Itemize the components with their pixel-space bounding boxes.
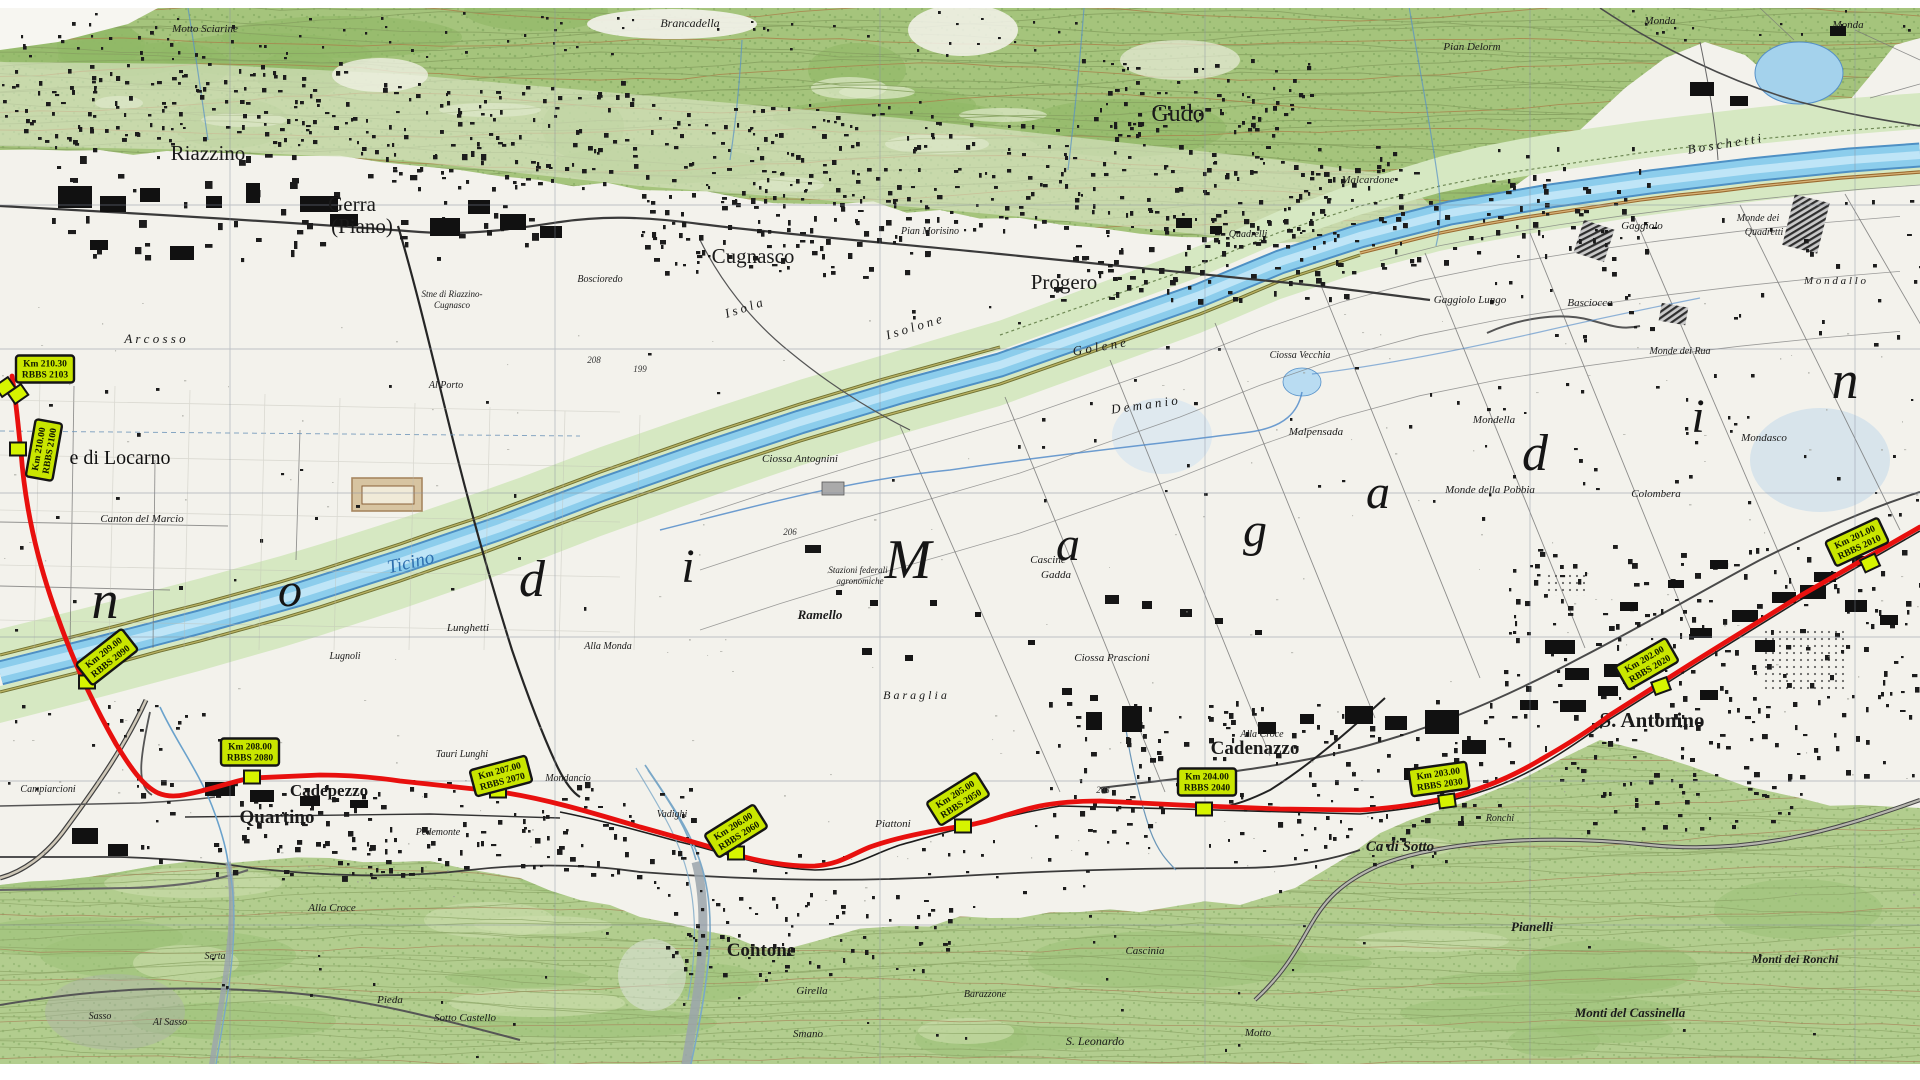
svg-text:Stne di Riazzino-: Stne di Riazzino- (422, 289, 483, 299)
svg-text:Boscioredo: Boscioredo (577, 274, 622, 285)
svg-text:Lunghetti: Lunghetti (446, 622, 489, 634)
svg-text:203: 203 (1096, 785, 1110, 795)
svg-text:o: o (278, 564, 302, 617)
svg-text:Monde dei Rua: Monde dei Rua (1648, 346, 1710, 357)
svg-text:Alla Croce: Alla Croce (1239, 729, 1284, 740)
svg-text:Vadighi: Vadighi (657, 809, 688, 820)
svg-text:Monti del Cassinella: Monti del Cassinella (1574, 1005, 1686, 1020)
svg-text:Ciossa Antognini: Ciossa Antognini (762, 453, 838, 465)
svg-text:Barazzone: Barazzone (964, 989, 1007, 1000)
svg-text:Gerra: Gerra (328, 192, 376, 216)
svg-text:Ramello: Ramello (797, 607, 843, 622)
svg-text:Progero: Progero (1031, 270, 1098, 294)
svg-text:Mondella: Mondella (1472, 414, 1516, 426)
svg-text:Campiarcioni: Campiarcioni (20, 784, 75, 795)
svg-text:Quadretti: Quadretti (1745, 227, 1784, 238)
svg-text:Malpensada: Malpensada (1288, 426, 1344, 438)
svg-text:Gadda: Gadda (1041, 569, 1071, 581)
svg-text:Lugnoli: Lugnoli (328, 651, 360, 662)
svg-text:Motto Sciarine: Motto Sciarine (171, 23, 238, 35)
svg-text:Sotto Castello: Sotto Castello (434, 1012, 497, 1024)
svg-text:208: 208 (587, 355, 601, 365)
svg-text:d: d (1522, 425, 1549, 482)
svg-text:g: g (1243, 504, 1267, 557)
svg-text:Motto: Motto (1244, 1027, 1272, 1039)
svg-text:n: n (1832, 350, 1859, 410)
svg-text:Cascine: Cascine (1030, 554, 1066, 566)
svg-text:Malcardone: Malcardone (1340, 174, 1394, 186)
svg-text:Sasso: Sasso (89, 1011, 112, 1022)
svg-text:Quadrelli: Quadrelli (1229, 229, 1268, 240)
svg-text:199: 199 (633, 364, 647, 374)
svg-text:Cugnasco: Cugnasco (434, 300, 471, 310)
svg-text:Gaggiolo: Gaggiolo (1621, 220, 1663, 232)
svg-text:d: d (519, 551, 546, 608)
svg-text:RBBS 2080: RBBS 2080 (227, 754, 273, 764)
svg-text:Tauri Lunghi: Tauri Lunghi (436, 749, 488, 760)
svg-text:Contone: Contone (727, 940, 796, 961)
svg-text:RBBS 2103: RBBS 2103 (22, 371, 68, 381)
svg-text:Piattoni: Piattoni (874, 818, 910, 830)
svg-text:Cadepezzo: Cadepezzo (290, 781, 368, 800)
svg-text:agronomiche: agronomiche (836, 576, 883, 586)
svg-text:M o n d a l l o: M o n d a l l o (1803, 275, 1867, 287)
svg-text:Monda: Monda (1831, 19, 1864, 31)
svg-text:Brancadella: Brancadella (660, 16, 719, 30)
svg-text:e di Locarno: e di Locarno (69, 447, 170, 469)
svg-text:Pedemonte: Pedemonte (415, 827, 461, 838)
svg-text:Ca di Sotto: Ca di Sotto (1366, 839, 1434, 855)
svg-text:i: i (681, 540, 694, 593)
svg-text:M: M (884, 529, 935, 591)
svg-text:Alla Monda: Alla Monda (583, 641, 632, 652)
svg-text:Alla Croce: Alla Croce (307, 902, 356, 914)
svg-text:Pian Morisino: Pian Morisino (900, 226, 959, 237)
svg-text:Stazioni federali: Stazioni federali (828, 565, 888, 575)
svg-text:Al Porto: Al Porto (428, 380, 463, 391)
svg-text:S. Leonardo: S. Leonardo (1066, 1034, 1124, 1048)
svg-text:Colombera: Colombera (1631, 488, 1681, 500)
svg-text:A r c o s s o: A r c o s s o (123, 331, 186, 346)
svg-text:n: n (92, 570, 119, 630)
svg-text:Cugnasco: Cugnasco (712, 244, 795, 268)
svg-text:Canton del Marcio: Canton del Marcio (100, 513, 184, 525)
svg-text:i: i (1691, 390, 1704, 443)
svg-text:Smano: Smano (793, 1028, 823, 1040)
svg-text:a: a (1366, 466, 1390, 519)
svg-text:Riazzino: Riazzino (171, 141, 246, 165)
svg-text:Km 204.00: Km 204.00 (1185, 773, 1229, 783)
svg-text:Serta: Serta (204, 951, 225, 962)
svg-text:Gudo: Gudo (1151, 101, 1204, 127)
svg-text:(Piano): (Piano) (331, 214, 393, 238)
svg-text:Monde dei: Monde dei (1736, 213, 1780, 224)
svg-text:Al Sasso: Al Sasso (152, 1017, 187, 1028)
svg-text:RBBS 2040: RBBS 2040 (1184, 784, 1230, 794)
svg-text:Mondasco: Mondasco (1740, 432, 1787, 444)
svg-text:Ciossa Prascioni: Ciossa Prascioni (1074, 652, 1149, 664)
svg-text:Km 210.30: Km 210.30 (23, 360, 67, 370)
svg-text:Cadenazzo: Cadenazzo (1211, 738, 1300, 759)
svg-text:Gaggiolo Lungo: Gaggiolo Lungo (1434, 294, 1507, 306)
svg-text:Ronchi: Ronchi (1485, 813, 1515, 824)
svg-text:206: 206 (783, 527, 797, 537)
svg-text:Monda: Monda (1643, 15, 1676, 27)
svg-text:Monti dei Ronchi: Monti dei Ronchi (1751, 952, 1839, 966)
svg-text:Girella: Girella (796, 985, 828, 997)
svg-text:Quartino: Quartino (240, 807, 315, 828)
svg-text:Pieda: Pieda (376, 994, 403, 1006)
svg-text:Mondancio: Mondancio (544, 773, 591, 784)
svg-text:Km 208.00: Km 208.00 (228, 743, 272, 753)
svg-text:Cascinia: Cascinia (1125, 945, 1165, 957)
svg-text:B a r a g l i a: B a r a g l i a (883, 688, 947, 702)
svg-text:Pianelli: Pianelli (1511, 919, 1553, 934)
svg-text:Ciossa Vecchia: Ciossa Vecchia (1270, 350, 1331, 361)
svg-text:Monde della Pobbia: Monde della Pobbia (1444, 484, 1535, 496)
svg-text:Basciocca: Basciocca (1567, 297, 1613, 309)
svg-text:Pian Delorm: Pian Delorm (1442, 41, 1500, 53)
